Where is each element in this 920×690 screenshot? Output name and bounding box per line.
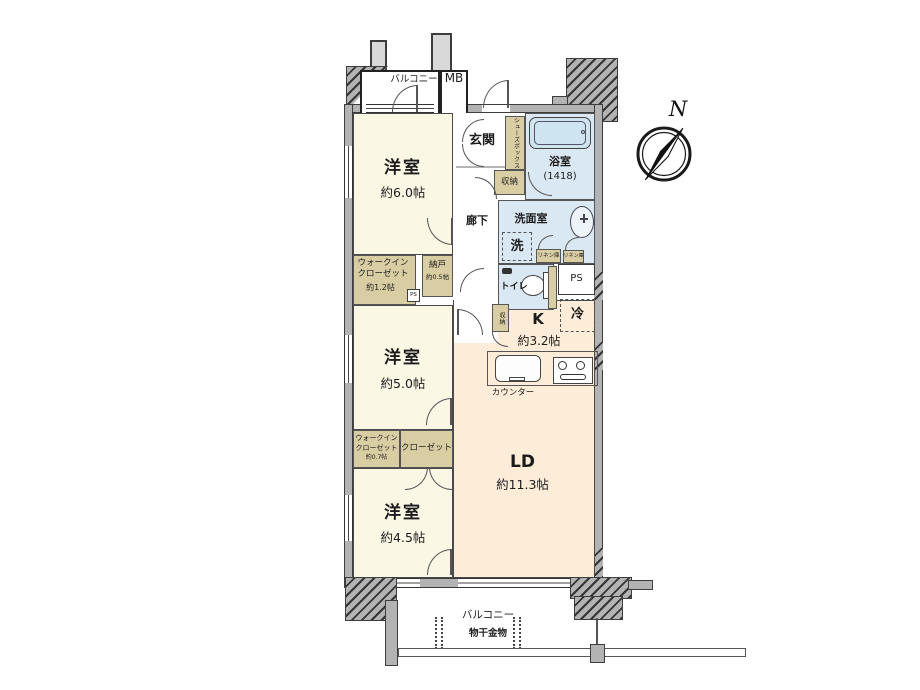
washroom-label: 洗面室: [503, 212, 559, 227]
washbasin-icon: [570, 206, 594, 238]
bedroom5-door-leaf: [450, 398, 452, 425]
bedroom5-name: 洋室: [363, 348, 443, 370]
kitchen-name: K: [518, 310, 558, 330]
washbasin-faucet-2: [583, 214, 585, 223]
bedroom5-size: 約5.0帖: [363, 376, 443, 392]
corner-block-bottom-right-bar: [628, 580, 653, 590]
entrance-door-arc: [483, 80, 509, 108]
bedroom6-size: 約6.0帖: [363, 185, 443, 201]
window-bedroom45-left: [344, 495, 353, 541]
wic-large-line1: ウォークイン: [353, 258, 413, 269]
balcony-bottom-label: バルコニー: [438, 608, 538, 623]
stove-burner-1: [558, 361, 567, 370]
balcony-left-wall: [385, 600, 398, 666]
kitchen-size: 約3.2帖: [513, 334, 565, 349]
bathroom-size: (1418): [530, 170, 590, 183]
toilet-label: トイレ: [499, 281, 529, 294]
meter-box-label: MB: [440, 70, 468, 88]
bedroom6-door-leaf: [451, 218, 453, 245]
ld-name: LD: [495, 453, 550, 473]
window-ld-bottom: [458, 578, 576, 588]
linen-b-label: リネン庫: [563, 251, 584, 262]
ldk-door-leaf: [457, 309, 459, 335]
nando-label: 納戸: [422, 260, 453, 271]
kitchen-closet-label: 収納: [492, 305, 509, 331]
bathtub-drain: [581, 130, 585, 134]
bathtub-inner: [534, 121, 586, 145]
wic-small-size: 約0.7帖: [353, 454, 400, 463]
linen-a-label: リネン庫: [536, 250, 561, 262]
stove-burner-2: [576, 361, 585, 370]
hallway-label: 廊下: [460, 214, 494, 229]
entrance-door-leaf: [507, 80, 509, 108]
ld-size: 約11.3帖: [490, 477, 555, 493]
laundry-mark-right: [513, 617, 521, 649]
corner-block-bottom-right-b: [574, 596, 623, 620]
wall-right-hatch-1: [594, 272, 603, 300]
entry-closet-label: 収納: [494, 170, 525, 195]
compass-north-label: N: [668, 97, 688, 121]
balcony-door-leaf: [416, 85, 418, 112]
counter-label: カウンター: [489, 388, 537, 399]
wic-large-line2: クローゼット: [353, 269, 413, 280]
window-bedroom5-left: [344, 335, 353, 383]
toilet-paper-holder-icon: [502, 268, 512, 274]
bedroom6-name: 洋室: [363, 158, 443, 180]
laundry-mark-left: [435, 617, 443, 649]
wic-small-line2: クローゼット: [353, 443, 400, 453]
wall-right-hatch-3: [594, 548, 603, 576]
entrance-label: 玄関: [462, 132, 502, 150]
bedroom45-size: 約4.5帖: [363, 530, 443, 546]
sink-drain: [509, 377, 525, 381]
window-bedroom6-left: [344, 146, 353, 198]
toilet-shelf: [548, 266, 557, 309]
closet-label: クローゼット: [400, 430, 453, 468]
compass: N: [626, 96, 706, 194]
bathroom-label: 浴室: [530, 155, 590, 169]
wic-large-size: 約1.2帖: [353, 282, 408, 293]
wic-small-line1: ウォークイン: [353, 433, 400, 443]
railing-connector: [590, 644, 605, 663]
washer-label: 洗: [502, 234, 532, 260]
floor-plan: バルコニー MB 洗 リネン庫 リネン庫 収納 カウンター: [0, 0, 920, 690]
shoes-box-label: シューズボックス: [505, 117, 525, 169]
bedroom45-name: 洋室: [363, 503, 443, 525]
ps-main-label: PS: [558, 271, 595, 286]
pipe-space-small-label: PS: [407, 289, 420, 302]
bedroom45-door-leaf: [450, 549, 452, 575]
fridge-label: 冷: [560, 301, 595, 330]
balcony-railing: [398, 648, 746, 657]
stove-grill: [560, 374, 586, 380]
nando-size: 約0.5帖: [422, 273, 453, 283]
